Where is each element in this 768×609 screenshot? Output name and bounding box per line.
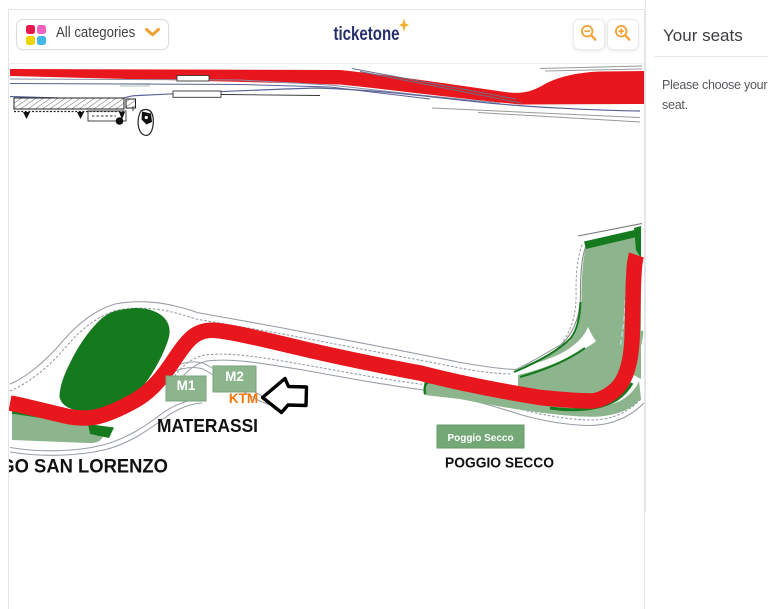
svg-text:MATERASSI: MATERASSI <box>157 416 258 436</box>
svg-text:M2: M2 <box>225 369 244 384</box>
svg-text:Poggio Secco: Poggio Secco <box>447 433 513 444</box>
svg-text:RGO SAN LORENZO: RGO SAN LORENZO <box>0 456 168 478</box>
svg-text:M1: M1 <box>177 378 196 393</box>
svg-text:POGGIO SECCO: POGGIO SECCO <box>445 455 554 472</box>
svg-text:KTM: KTM <box>229 391 258 406</box>
